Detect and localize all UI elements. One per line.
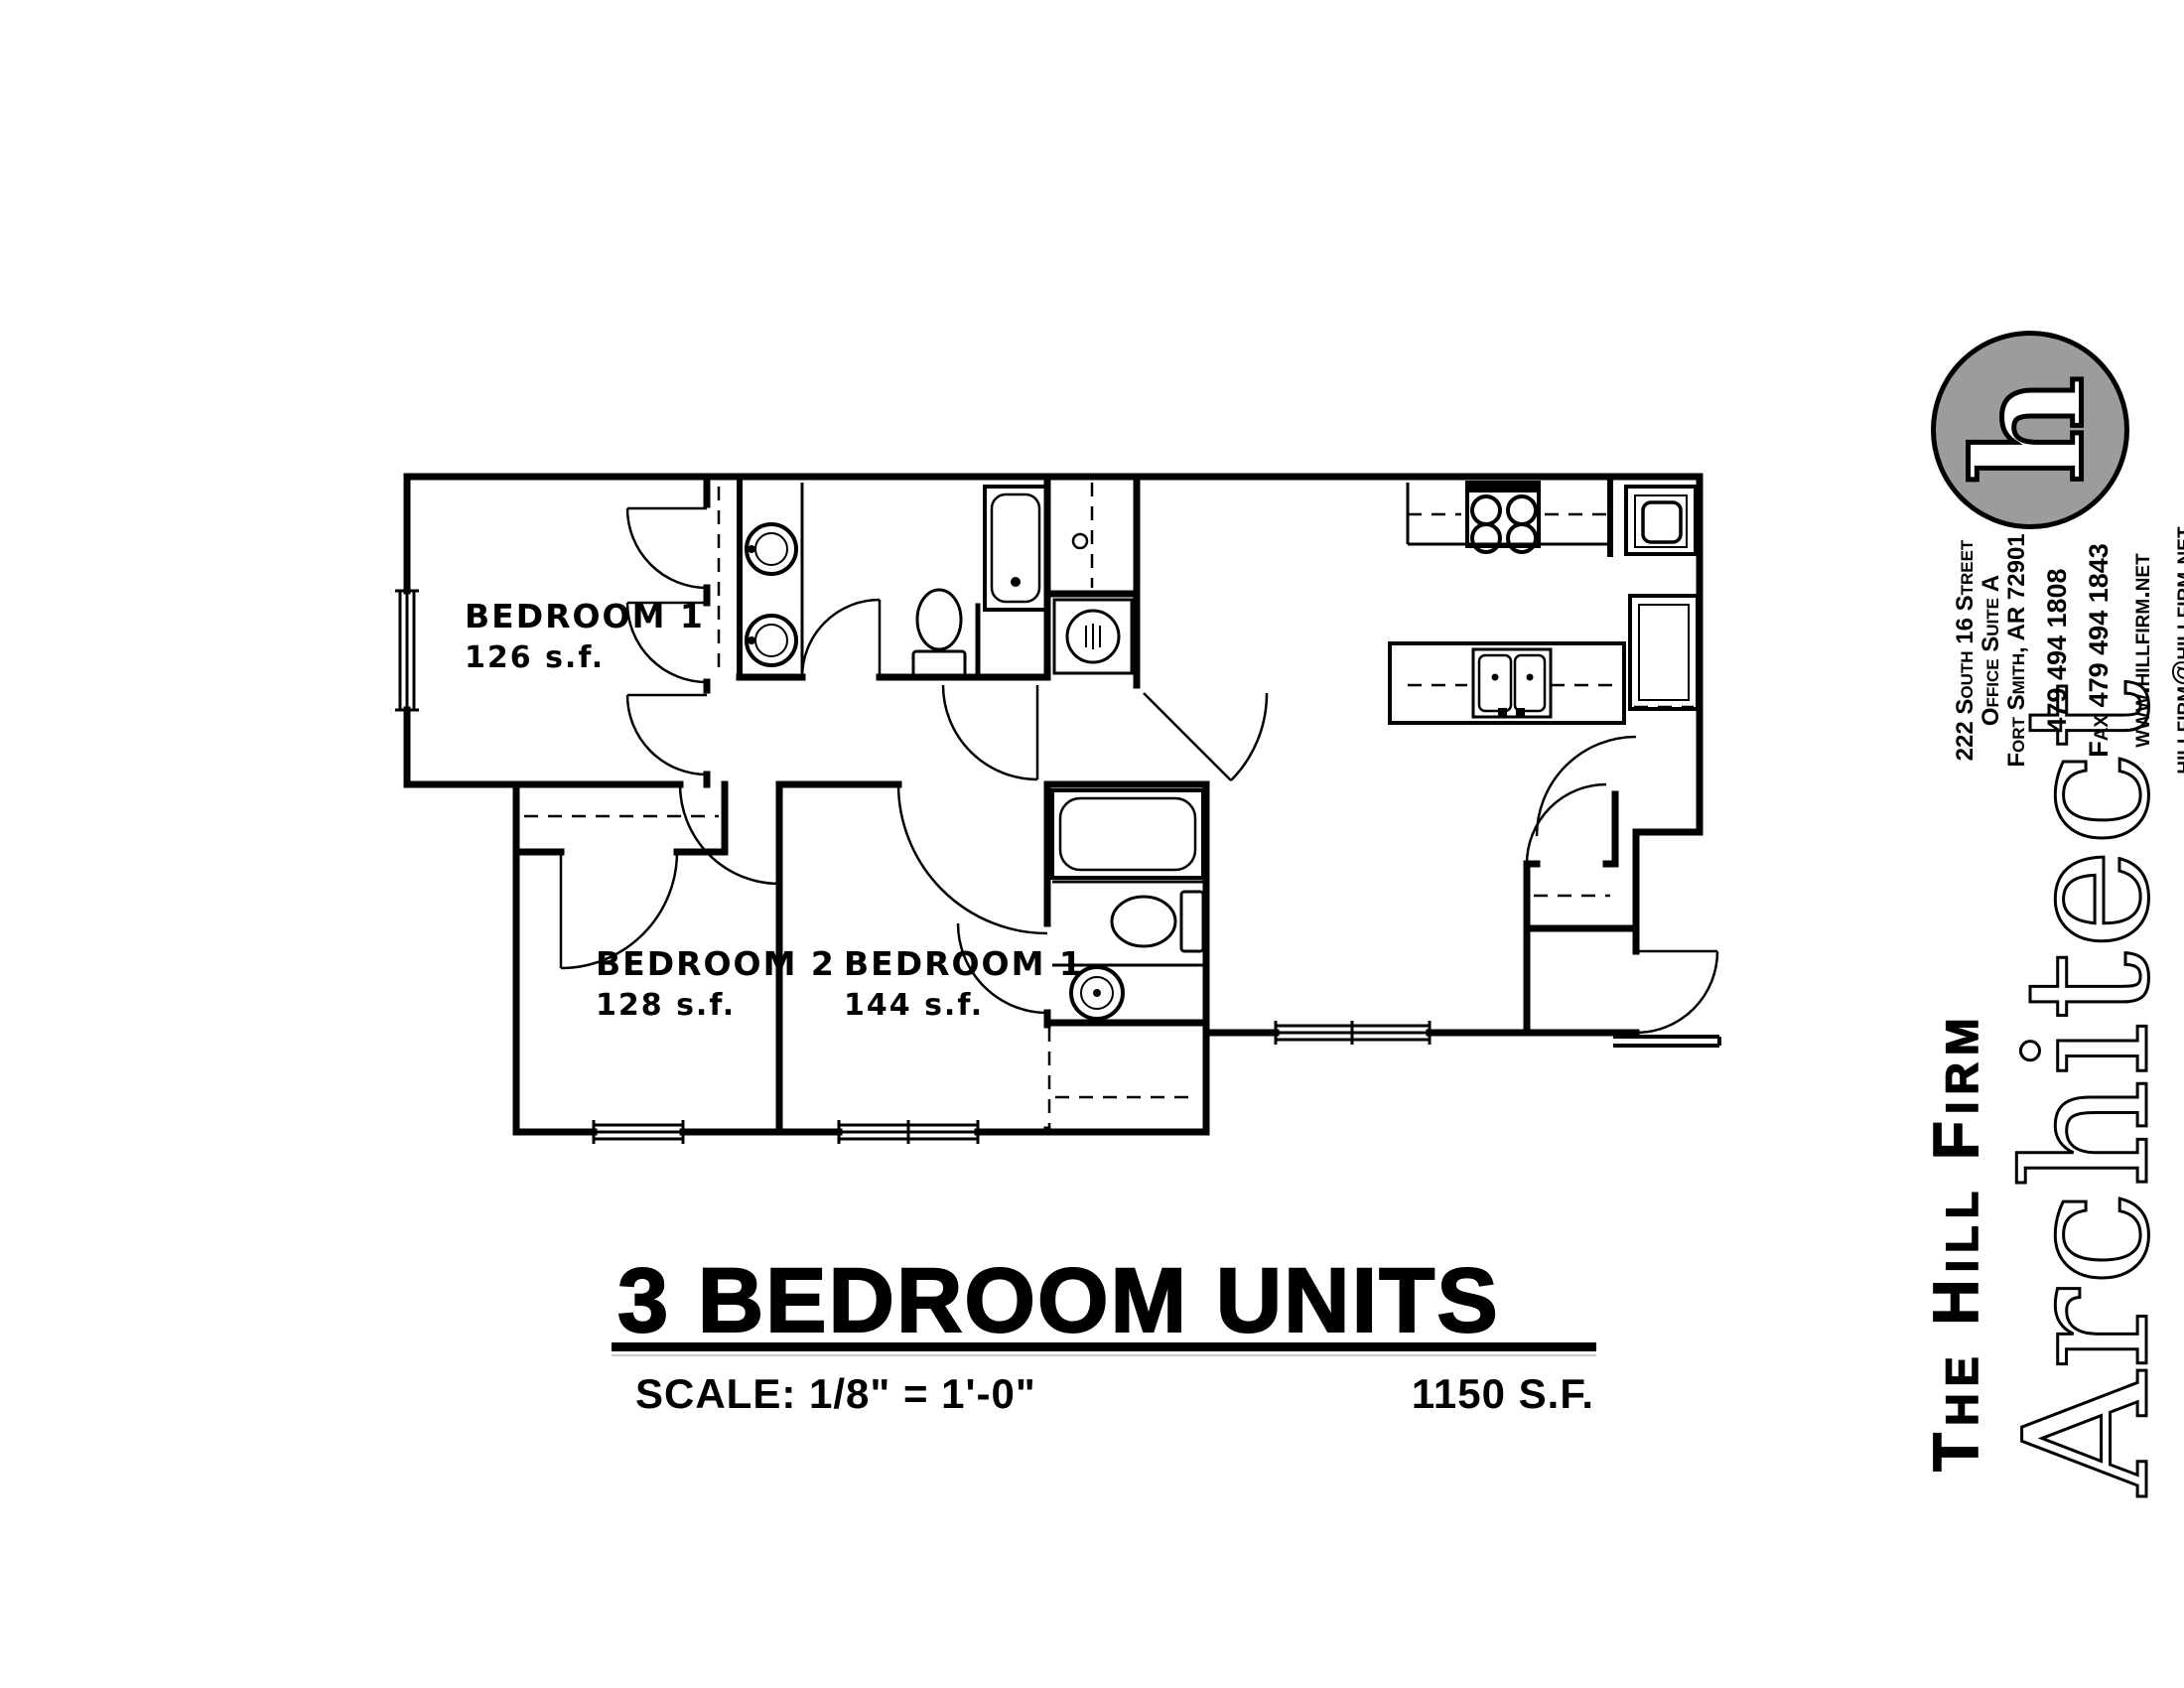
scale-row: SCALE: 1/8" = 1'-0" 1150 S.F. [635, 1370, 1594, 1418]
kitchen-peninsula-sink [1390, 643, 1624, 723]
bath1-bathtub [985, 487, 1046, 610]
drawing-title: 3 BEDROOM UNITS [617, 1249, 1500, 1353]
room-area-bedroom1-144: 144 s.f. [844, 988, 984, 1023]
firm-discipline: Architect [1987, 731, 2184, 1495]
drawing-sheet: BEDROOM 1 126 s.f. BEDROOM 2 128 s.f. BE… [0, 0, 2184, 1688]
kitchen-pantry [1630, 596, 1698, 709]
scale-label: SCALE: 1/8" = 1'-0" [635, 1370, 1036, 1418]
bath2-bathtub [1052, 790, 1206, 882]
firm-name: The Hill Firm [1919, 776, 1992, 1472]
room-labels: BEDROOM 1 126 s.f. BEDROOM 2 128 s.f. BE… [465, 597, 1084, 1023]
firm-address-line1: 222 South 16 Street [1953, 496, 1979, 804]
room-label-bedroom2: BEDROOM 2 [596, 944, 836, 983]
floor-plan: BEDROOM 1 126 s.f. BEDROOM 2 128 s.f. BE… [0, 0, 2184, 1688]
firm-logo-letter: h [1956, 375, 2105, 484]
bath2-toilet [1112, 892, 1203, 951]
room-label-bedroom1-144: BEDROOM 1 [844, 944, 1084, 983]
bath1-toilet [913, 590, 965, 677]
title-underline [612, 1342, 1596, 1351]
room-area-bedroom2: 128 s.f. [596, 988, 736, 1023]
title-underline-shadow [612, 1354, 1596, 1356]
room-area-bedroom1-126: 126 s.f. [465, 640, 605, 675]
entry-landing [1613, 1037, 1719, 1046]
total-area-label: 1150 S.F. [1412, 1370, 1594, 1418]
refrigerator [1626, 487, 1696, 554]
room-label-bedroom1-126: BEDROOM 1 [465, 597, 705, 635]
kitchen-range [1408, 483, 1610, 552]
bath1-vanity-sinks [747, 483, 802, 673]
